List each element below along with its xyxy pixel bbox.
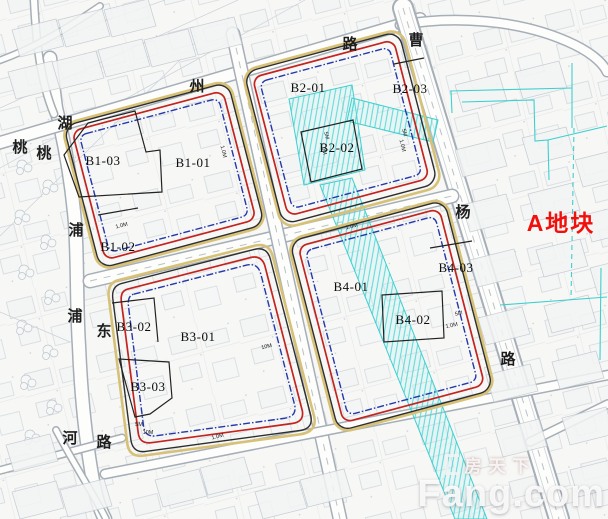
road-char: 东 <box>96 322 111 340</box>
road-char: 湖 <box>57 115 72 132</box>
watermark-domain: Fang.com <box>418 475 605 513</box>
parcel-label-b3-02: B3-02 <box>117 319 152 334</box>
road-char: 浦 <box>67 307 82 325</box>
planning-map: 湖 州 路 曹 杨 路 桃 桃 浦 浦 东 河 路 B1-01 B1-02 B1… <box>0 0 608 519</box>
parcel-label-b1-01: B1-01 <box>176 155 211 170</box>
road-char: 路 <box>500 350 516 368</box>
road-char: 路 <box>96 433 112 451</box>
road-char: 河 <box>62 429 77 447</box>
map-canvas: 湖 州 路 曹 杨 路 桃 桃 浦 浦 东 河 路 B1-01 B1-02 B1… <box>0 0 608 519</box>
parcel-label-b2-01: B2-01 <box>291 80 326 95</box>
road-char: 桃 <box>36 144 51 162</box>
setback-label: 10M <box>143 430 154 436</box>
region-highlight-label: A地块 <box>527 210 596 236</box>
road-char: 州 <box>188 78 204 95</box>
parcel-label-b4-01: B4-01 <box>334 279 369 294</box>
parcel-label-b3-03: B3-03 <box>131 379 166 394</box>
road-char: 桃 <box>12 138 27 156</box>
fang-watermark: 房天下 Fang.com <box>418 452 605 513</box>
road-char: 浦 <box>68 221 83 239</box>
road-char: 路 <box>342 35 358 53</box>
parcel-label-b2-03: B2-03 <box>393 81 428 96</box>
setback-label: 5M <box>135 422 143 428</box>
parcel-label-b4-03: B4-03 <box>439 260 474 275</box>
road-char: 曹 <box>408 31 423 49</box>
road-char: 杨 <box>455 203 470 221</box>
parcel-label-b4-02: B4-02 <box>396 312 431 327</box>
fang-logo-icon <box>445 454 459 475</box>
parcel-label-b1-03: B1-03 <box>86 153 121 168</box>
parcel-label-b3-01: B3-01 <box>181 329 216 344</box>
parcel-label-b1-02: B1-02 <box>101 239 136 254</box>
